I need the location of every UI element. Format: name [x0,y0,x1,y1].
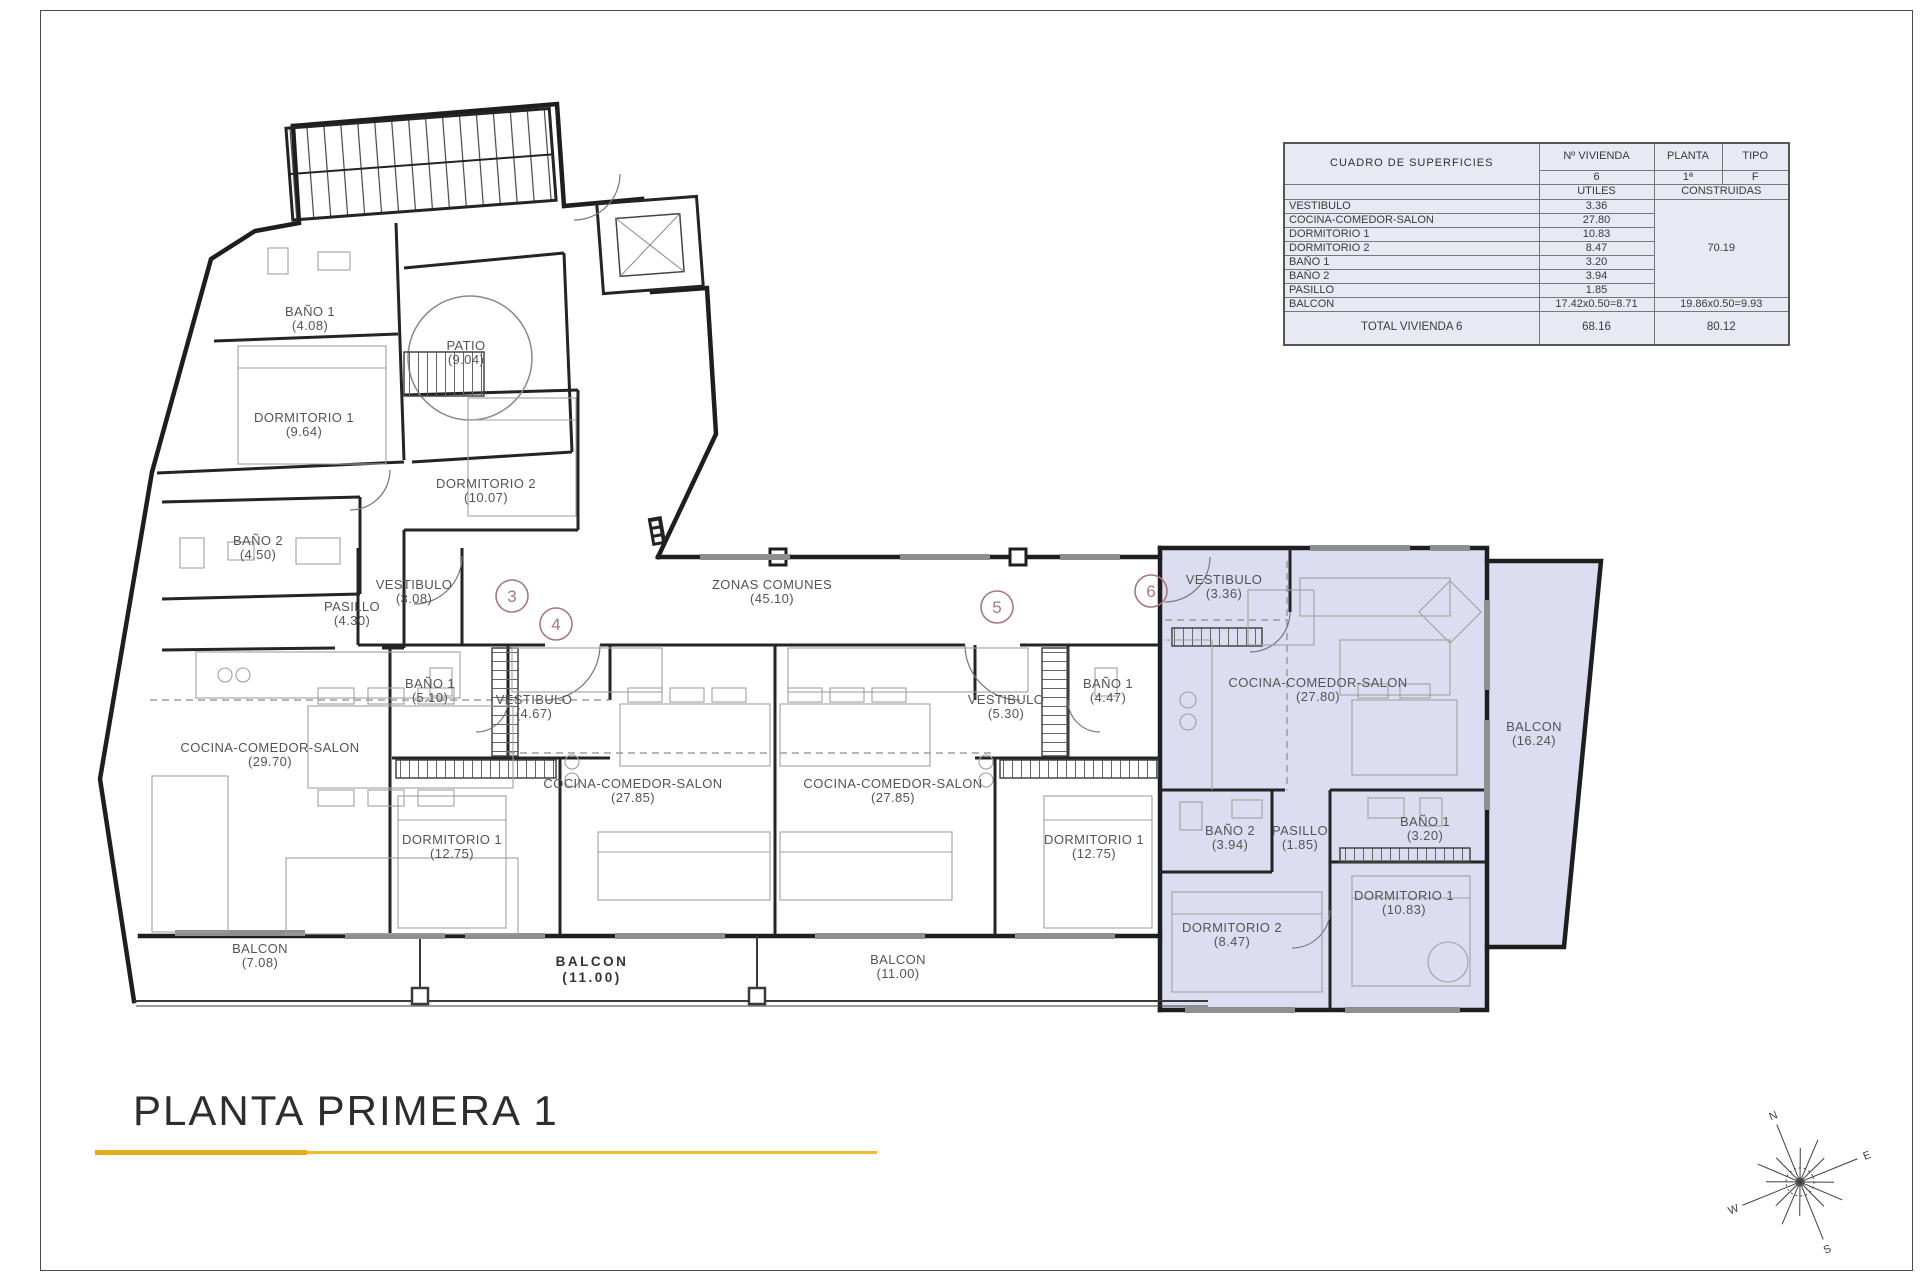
room-label: DORMITORIO 1 [1044,832,1144,847]
room-area: (5.30) [988,706,1024,721]
planta-value: 1ª [1654,170,1722,184]
row-label: DORMITORIO 2 [1284,241,1539,255]
room-label: DORMITORIO 1 [402,832,502,847]
room-label: BALCON [1506,719,1562,734]
room-area: (3.20) [1407,828,1443,843]
room-area: (7.08) [242,955,278,970]
room-area: (27.85) [611,790,655,805]
row-utiles: 3.36 [1539,199,1654,213]
col-planta: PLANTA [1654,143,1722,170]
col-construidas: CONSTRUIDAS [1654,184,1789,199]
room-label: COCINA-COMEDOR-SALON [543,776,722,791]
room-label: DORMITORIO 1 [1354,888,1454,903]
room-area: (3.08) [396,591,432,606]
compass-w: W [1727,1202,1742,1217]
room-area: (11.00) [562,970,622,985]
room-area: (45.10) [750,591,794,606]
title-underline-thin [307,1151,877,1154]
room-label: BALCON [870,952,926,967]
room-area: (3.36) [1206,586,1242,601]
room-label: COCINA-COMEDOR-SALON [1228,675,1407,690]
room-label: VESTIBULO [1186,572,1263,587]
room-area: (10.07) [464,490,508,505]
construidas-merged: 70.19 [1654,199,1789,297]
stairwell [286,108,556,220]
room-label: BAÑO 1 [405,676,455,691]
col-vivienda: Nº VIVIENDA [1539,143,1654,170]
room-area: (9.64) [286,424,322,439]
unit-number-3: 3 [507,587,516,606]
row-label: VESTIBULO [1284,199,1539,213]
compass-n: N [1767,1109,1779,1123]
compass-s: S [1822,1243,1833,1257]
room-label: BAÑO 1 [285,304,335,319]
room-area: (12.75) [430,846,474,861]
room-label: BAÑO 2 [1205,823,1255,838]
room-label: BAÑO 1 [1083,676,1133,691]
room-area: (27.80) [1296,689,1340,704]
total-construidas: 80.12 [1654,311,1789,345]
room-label: DORMITORIO 2 [436,476,536,491]
unit-number-4: 4 [551,615,560,634]
balcony-rail [134,936,1208,1006]
room-label: PATIO [446,338,485,353]
room-label: DORMITORIO 1 [254,410,354,425]
row-utiles: 27.80 [1539,213,1654,227]
row-label: PASILLO [1284,283,1539,297]
total-utiles: 68.16 [1539,311,1654,345]
room-area: (4.08) [292,318,328,333]
room-label: BALCON [556,954,629,969]
room-area: (5.10) [412,690,448,705]
surfaces-table: CUADRO DE SUPERFICIES Nº VIVIENDA PLANTA… [1283,142,1790,346]
room-area: (4.30) [334,613,370,628]
vivienda-value: 6 [1539,170,1654,184]
row-label: DORMITORIO 1 [1284,227,1539,241]
room-area: (3.94) [1212,837,1248,852]
col-utiles: UTILES [1539,184,1654,199]
room-area: (9.04) [448,352,484,367]
row-utiles: 8.47 [1539,241,1654,255]
room-label: VESTIBULO [968,692,1045,707]
floor-plan-page: { "page": { "title": "PLANTA PRIMERA 1" … [0,0,1920,1280]
row-label: BALCON [1284,297,1539,311]
room-area: (4.67) [516,706,552,721]
tipo-value: F [1722,170,1789,184]
room-area: (4.47) [1090,690,1126,705]
panel-mark [648,516,667,546]
room-area: (29.70) [248,754,292,769]
balcon-construidas: 19.86x0.50=9.93 [1654,297,1789,311]
room-label: PASILLO [324,599,380,614]
row-utiles: 1.85 [1539,283,1654,297]
room-label: COCINA-COMEDOR-SALON [180,740,359,755]
room-label: ZONAS COMUNES [712,577,832,592]
room-area: (10.83) [1382,902,1426,917]
row-label: COCINA-COMEDOR-SALON [1284,213,1539,227]
row-utiles: 10.83 [1539,227,1654,241]
room-area: (11.00) [876,966,919,981]
room-area: (8.47) [1214,934,1250,949]
room-label: PASILLO [1272,823,1328,838]
row-utiles: 3.94 [1539,269,1654,283]
room-label: COCINA-COMEDOR-SALON [803,776,982,791]
row-label: BAÑO 1 [1284,255,1539,269]
room-label: VESTIBULO [376,577,453,592]
row-utiles: 17.42x0.50=8.71 [1539,297,1654,311]
table-title: CUADRO DE SUPERFICIES [1284,143,1539,184]
room-label: DORMITORIO 2 [1182,920,1282,935]
elevator [597,196,703,293]
room-label: VESTIBULO [496,692,573,707]
room-area: (4.50) [240,547,276,562]
room-area: (16.24) [1512,733,1556,748]
unit-number-6: 6 [1146,582,1155,601]
room-label: BAÑO 2 [233,533,283,548]
room-area: (12.75) [1072,846,1116,861]
row-utiles: 3.20 [1539,255,1654,269]
total-label: TOTAL VIVIENDA 6 [1284,311,1539,345]
room-label: BALCON [232,941,288,956]
room-label: BAÑO 1 [1400,814,1450,829]
compass-icon: N E S W [1700,1082,1900,1280]
col-tipo: TIPO [1722,143,1789,170]
unit-number-5: 5 [992,598,1001,617]
room-area: (1.85) [1282,837,1318,852]
compass-e: E [1861,1149,1872,1163]
row-label: BAÑO 2 [1284,269,1539,283]
page-title: PLANTA PRIMERA 1 [133,1087,559,1135]
title-underline-thick [95,1150,307,1155]
room-area: (27.85) [871,790,915,805]
